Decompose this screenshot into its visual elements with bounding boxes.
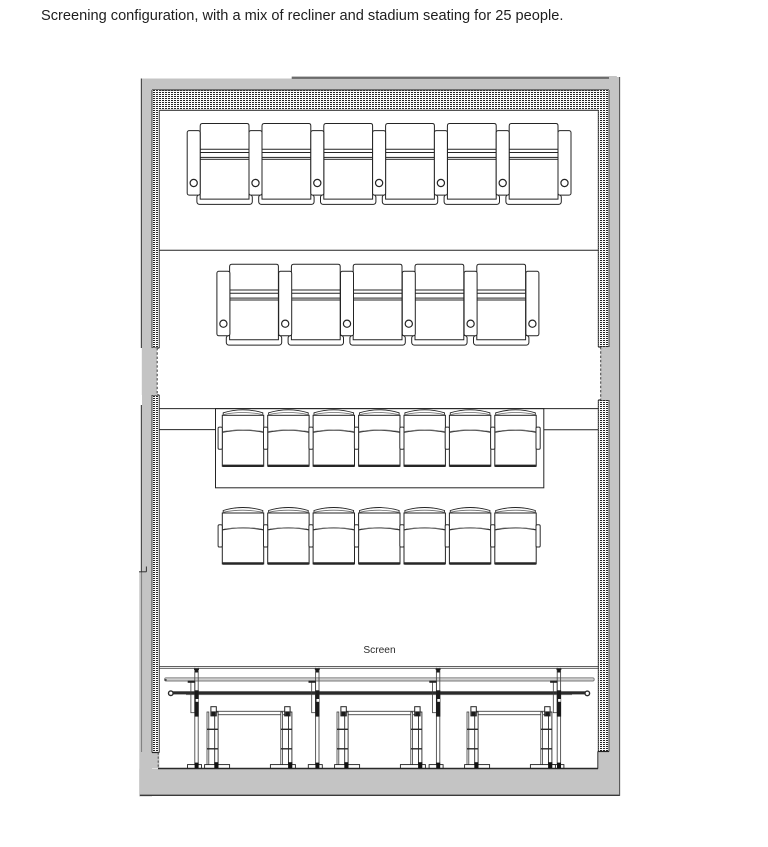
svg-text:Screen: Screen xyxy=(363,645,395,656)
svg-text:Screening configuration, with: Screening configuration, with a mix of r… xyxy=(41,8,563,24)
